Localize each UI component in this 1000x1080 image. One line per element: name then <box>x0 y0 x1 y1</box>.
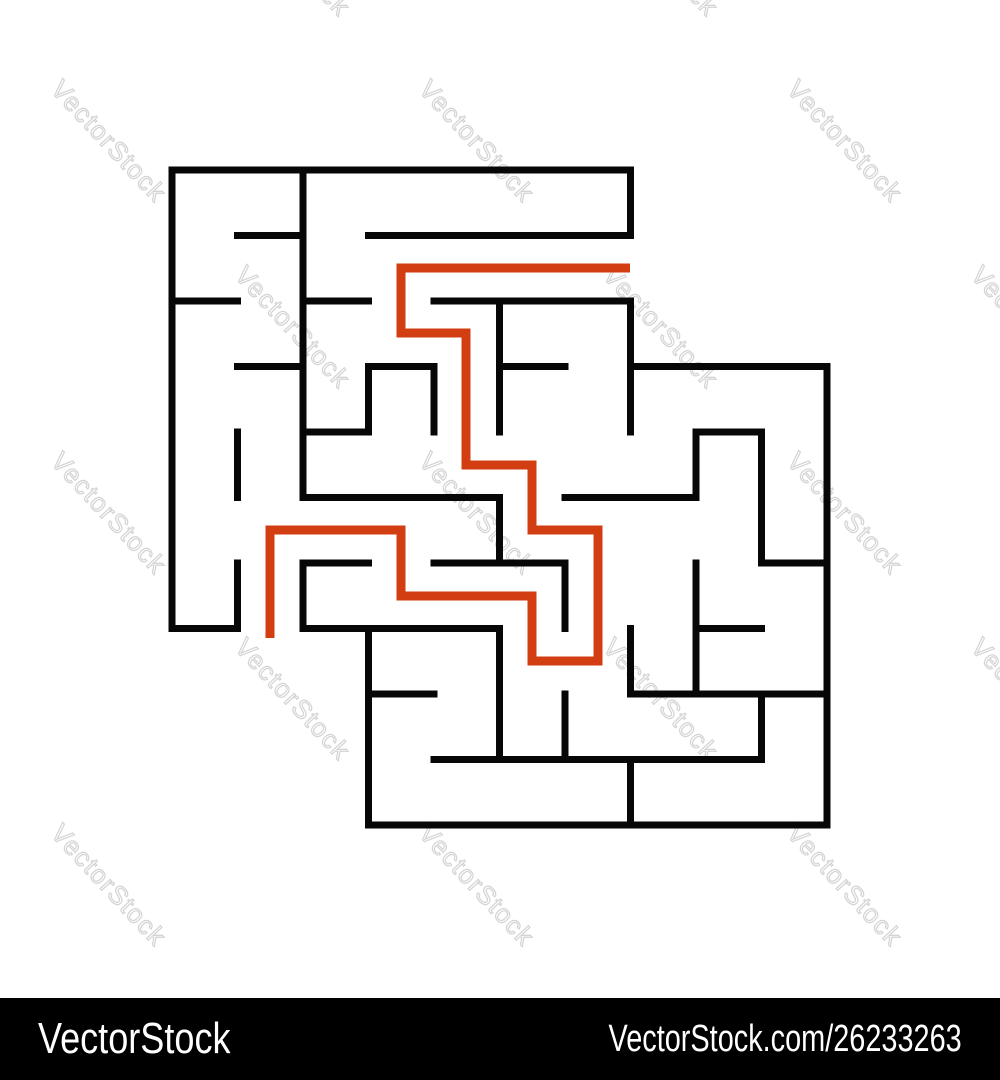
solution-polyline <box>270 268 630 661</box>
image-credit-url[interactable]: VectorStock.com/26233263 <box>609 1018 962 1061</box>
maze-solution-path <box>270 268 630 661</box>
footer-bar: VectorStock VectorStock.com/26233263 <box>0 998 1000 1080</box>
vectorstock-logo: VectorStock <box>38 1014 231 1064</box>
stock-image-canvas: VectorStockVectorStockVectorStockVectorS… <box>0 0 1000 1080</box>
maze-illustration <box>0 0 1000 1080</box>
